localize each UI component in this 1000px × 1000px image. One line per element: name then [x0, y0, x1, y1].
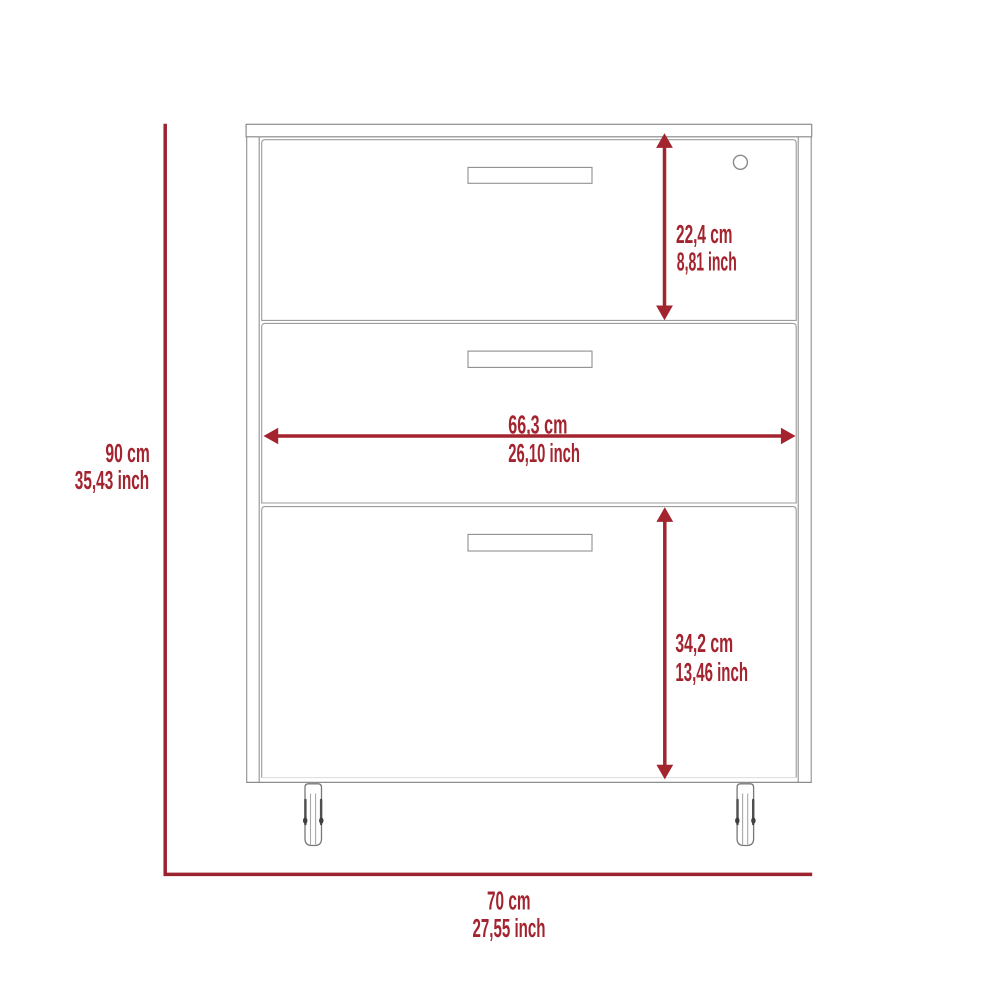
svg-text:90 cm: 90 cm: [105, 440, 149, 468]
svg-text:26,10 inch: 26,10 inch: [508, 440, 580, 468]
svg-text:66,3 cm: 66,3 cm: [508, 412, 567, 440]
svg-text:8,81 inch: 8,81 inch: [677, 249, 737, 277]
svg-text:34,2 cm: 34,2 cm: [675, 630, 733, 658]
svg-text:70 cm: 70 cm: [487, 888, 531, 916]
svg-text:13,46 inch: 13,46 inch: [675, 659, 748, 687]
svg-text:27,55 inch: 27,55 inch: [473, 915, 546, 943]
svg-text:22,4 cm: 22,4 cm: [676, 221, 733, 249]
svg-text:35,43 inch: 35,43 inch: [75, 467, 149, 495]
